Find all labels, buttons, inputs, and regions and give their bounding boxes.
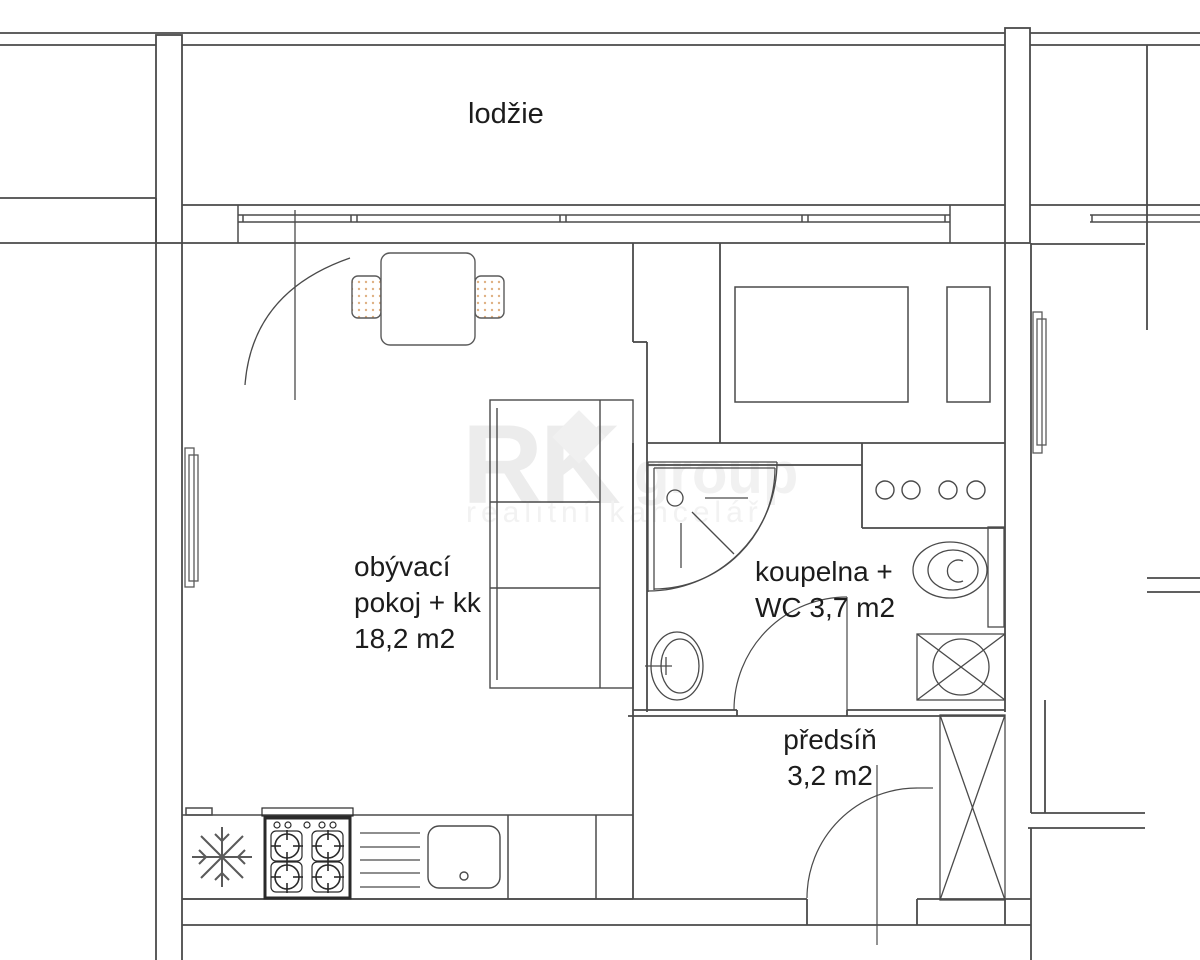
room-label-bathroom: koupelna + WC 3,7 m2 (755, 554, 895, 626)
kitchen-sink-icon (428, 826, 500, 888)
hall-label-line1: předsíň (742, 722, 918, 758)
washbasin-icon (645, 632, 703, 700)
room-label-loggia: lodžie (468, 98, 588, 131)
living-label-line1: obývací (354, 549, 481, 585)
radiator-icon (1033, 312, 1046, 453)
hall-label-area: 3,2 m2 (742, 758, 918, 794)
bed (735, 287, 908, 402)
living-label-area: 18,2 m2 (354, 621, 481, 657)
loggia-window (238, 205, 950, 243)
neighbor-window (1090, 215, 1200, 222)
sofa (490, 400, 633, 688)
balcony-door (245, 210, 350, 400)
chair-icon (352, 276, 381, 318)
living-label-line2: pokoj + kk (354, 585, 481, 621)
bathroom-label-area: WC 3,7 m2 (755, 590, 895, 626)
dining-table (352, 253, 504, 345)
kitchen-counter (182, 808, 633, 899)
drainboard-lines-icon (360, 833, 420, 887)
counter-knobs (876, 481, 985, 499)
chair-icon (475, 276, 504, 318)
nightstand (947, 287, 990, 402)
loggia-label-text: lodžie (468, 98, 588, 131)
wardrobe-x-icon (940, 715, 1005, 900)
room-label-hall: předsíň 3,2 m2 (742, 722, 918, 794)
toilet-icon (913, 527, 1004, 627)
radiator-icon (185, 448, 198, 587)
room-label-living: obývací pokoj + kk 18,2 m2 (354, 549, 481, 657)
snowflake-icon (192, 827, 252, 887)
plan-linework (0, 0, 1200, 960)
bathroom-label-line1: koupelna + (755, 554, 895, 590)
floor-plan: RK group realitní kancelář (0, 0, 1200, 960)
washing-machine-icon (917, 634, 1005, 700)
four-burner-stove-icon (262, 808, 353, 898)
